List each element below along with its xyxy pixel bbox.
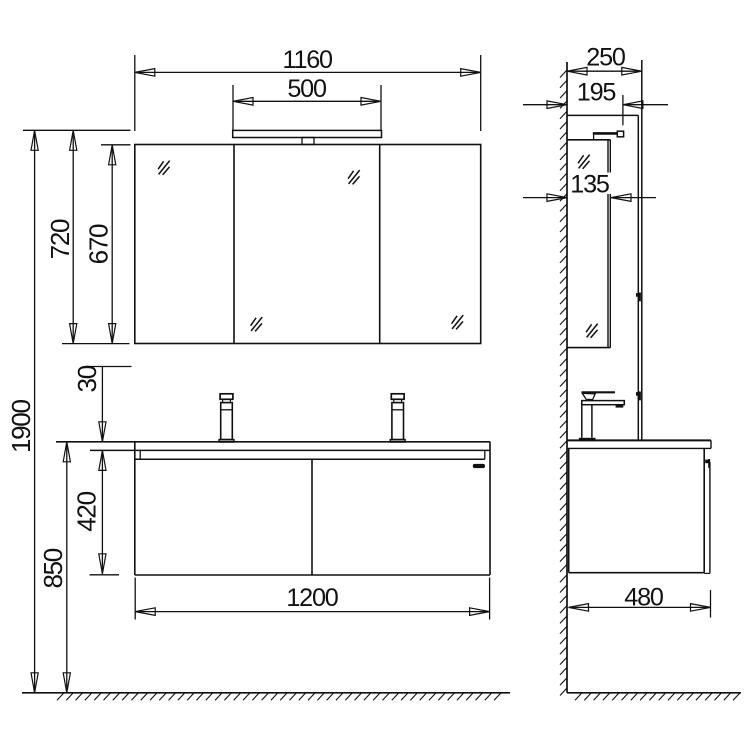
svg-text:1200: 1200 (286, 584, 338, 612)
svg-text:30: 30 (72, 365, 102, 392)
svg-text:480: 480 (624, 583, 664, 611)
svg-text:720: 720 (45, 219, 75, 259)
svg-text:850: 850 (38, 548, 68, 588)
svg-text:670: 670 (84, 224, 114, 264)
svg-text:250: 250 (586, 44, 626, 72)
svg-text:135: 135 (570, 170, 609, 198)
svg-text:1160: 1160 (283, 46, 334, 74)
svg-text:420: 420 (72, 491, 102, 531)
svg-text:195: 195 (577, 78, 616, 106)
svg-text:500: 500 (287, 75, 327, 103)
svg-text:1900: 1900 (6, 400, 36, 453)
